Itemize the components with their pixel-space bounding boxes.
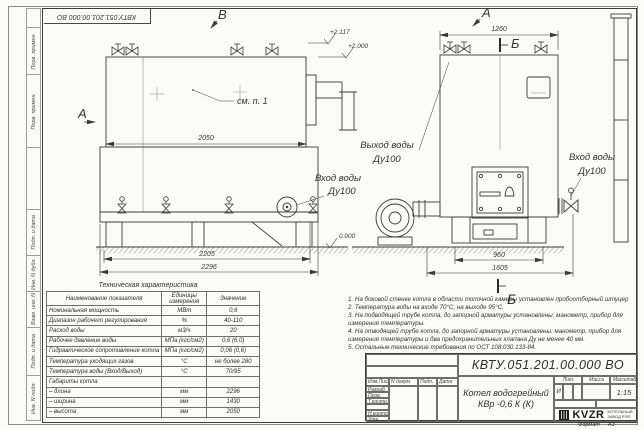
tech-table: Наименование показателя Единицыизмерения… [46, 291, 260, 418]
section-mark-top [500, 38, 508, 52]
note-line: 4. На отводящей трубе котла, до запорной… [348, 328, 638, 336]
top-valves-side [112, 44, 278, 55]
dimensions [100, 31, 573, 277]
table-row: – ширинамм1430 [47, 397, 260, 407]
dim-2050: 2050 [197, 135, 214, 142]
inlet-flange [277, 197, 297, 217]
dim-2296: 2296 [200, 264, 217, 271]
dim-960: 960 [493, 252, 505, 259]
product-name: Котел водогрейный КВр -0,6 К (К) [458, 376, 554, 422]
view-label-v: В [218, 7, 227, 22]
nameplate [527, 77, 550, 98]
centerline-marks [150, 85, 247, 101]
note-line: измерения температуры. [348, 320, 638, 328]
table-row: Гидравлическое сопротивление котлаМПа (к… [47, 346, 260, 356]
section-label-b-top: Б [511, 36, 520, 51]
elevation-marks [308, 34, 353, 248]
sheet-cell: Лист 1 [554, 400, 596, 408]
tech-col-value: Значение [207, 292, 260, 306]
lit-value: И [554, 384, 563, 400]
mass-label: Масса [582, 376, 610, 384]
row-utv: Утв. [366, 416, 389, 422]
elev-0000: 0.000 [339, 233, 356, 240]
revision-row [366, 366, 458, 378]
note-line: измерения температуры и два предохраните… [348, 336, 638, 344]
format-note: Формат А3 [578, 422, 636, 428]
front-base [452, 217, 546, 243]
callout-see-note: см. п. 1 [237, 96, 268, 106]
section-mark-bottom [498, 279, 506, 293]
table-row: – высотамм2050 [47, 407, 260, 417]
note-line: 1. На боковой стенке котла в области топ… [348, 296, 638, 304]
scale-label: Масштаб [610, 376, 638, 384]
col-data: Дата [437, 378, 458, 386]
format-value: А3 [608, 422, 615, 428]
tech-table-title: Техническая характеристика [46, 282, 250, 289]
dim-2205: 2205 [198, 251, 215, 258]
door-handle [480, 192, 500, 196]
table-row: Рабочее давление водыМПа (кгс/см2)0,6 (6… [47, 336, 260, 346]
tech-col-name: Наименование показателя [47, 292, 162, 306]
table-row: Диапазон рабочего регулирования%40-110 [47, 316, 260, 326]
col-izm-list: Изм.Лист [366, 378, 389, 386]
inlet-right-label-2: Ду100 [577, 166, 606, 177]
kvzr-logo-icon [559, 410, 569, 420]
front-view [352, 14, 631, 254]
elev-2117: +2.117 [330, 29, 350, 36]
inlet-valve-right [559, 188, 578, 214]
table-row: Температура воды (Вход/Выход)°С70/95 [47, 367, 260, 377]
table-row: Номинальная мощностьМВт0,6 [47, 306, 260, 316]
col-n-dokum: N докум. [389, 378, 418, 386]
scale-value: 1:15 [610, 384, 638, 400]
inlet-mid-label-2: Ду100 [327, 186, 356, 197]
lit-label: Лит. [554, 376, 582, 384]
note-line: 5. Остальные технические требования по О… [348, 344, 638, 352]
view-label-a-top: А [481, 5, 491, 20]
note-line: 3. На подводящей трубе котла, до запорно… [348, 312, 638, 320]
table-row: Температура уходящих газов°Сне более 280 [47, 356, 260, 366]
drawing-sheet: КВТУ.051.201.00.000 ВО Перв. примен. Пер… [0, 0, 644, 430]
ash-door [473, 224, 517, 239]
notes-block: 1. На боковой стенке котла в области топ… [348, 296, 638, 352]
outlet-label-1: Выход воды [360, 140, 413, 151]
dim-1260: 1260 [491, 26, 507, 33]
sheets-cell: Листов 2 [596, 400, 638, 408]
inlet-right-label-1: Вход воды [569, 152, 615, 163]
table-row: – длинамм2296 [47, 387, 260, 397]
note-line: 2. Температура воды на входе 70°С, на вы… [348, 304, 638, 312]
revision-row [366, 354, 458, 366]
title-block: Изм.Лист N докум. Подп. Дата Разраб. Про… [365, 353, 637, 421]
outlet-label-2: Ду100 [372, 154, 401, 165]
top-valves-front [444, 42, 547, 53]
furnace-door [472, 167, 528, 218]
col-podp: Подп. [418, 378, 437, 386]
blower-fan [376, 199, 440, 245]
table-row: Габариты котла [47, 377, 260, 387]
inlet-mid-label-1: Вход воды [315, 173, 361, 184]
tech-col-units: Единицыизмерения [162, 292, 207, 306]
mass-value [582, 384, 610, 400]
title-doc-number: КВТУ.051.201.00.000 ВО [458, 354, 638, 376]
logo-subtext: КОТЕЛЬНЫЙ ЗАВОД РЭП [607, 410, 632, 419]
manufacturer-logo: KVZR КОТЕЛЬНЫЙ ЗАВОД РЭП [554, 408, 638, 422]
view-label-a-left: А [77, 106, 87, 121]
table-row: Расход водым3/ч20 [47, 326, 260, 336]
chimney [611, 14, 631, 242]
dim-1605: 1605 [492, 265, 508, 272]
logo-text: KVZR [572, 409, 604, 421]
elev-2000: +2.000 [348, 43, 368, 50]
